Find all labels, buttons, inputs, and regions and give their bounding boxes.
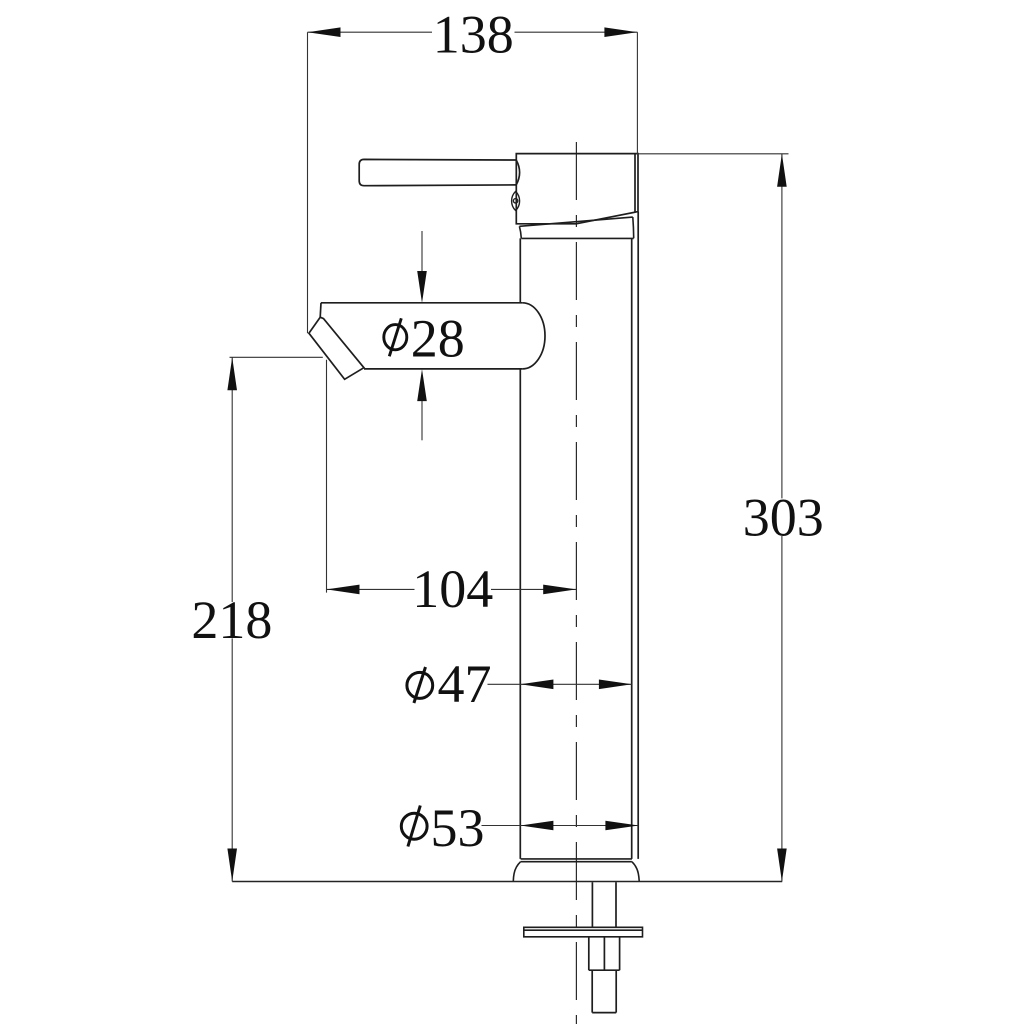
- svg-text:218: 218: [191, 590, 272, 650]
- svg-text:104: 104: [412, 559, 493, 619]
- svg-text:138: 138: [433, 4, 514, 64]
- svg-text:28: 28: [411, 308, 465, 368]
- svg-text:53: 53: [431, 798, 485, 858]
- svg-text:47: 47: [438, 654, 492, 714]
- svg-text:303: 303: [743, 488, 824, 548]
